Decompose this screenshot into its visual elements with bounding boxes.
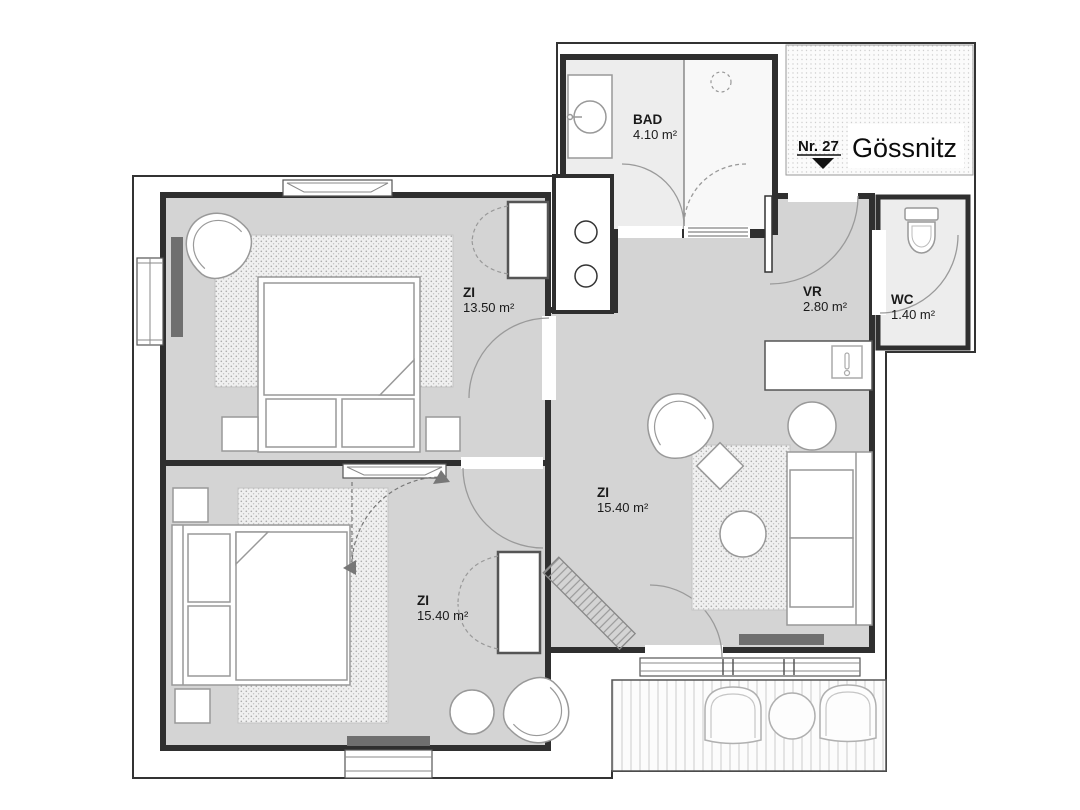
coffee-table-icon	[720, 511, 766, 557]
vanity-sink-icon	[568, 75, 613, 158]
balcony-chair-icon	[820, 685, 876, 742]
room-label-bad: BAD	[633, 112, 662, 127]
window-bedroom-top-north	[283, 180, 392, 196]
room-label-zi-bottom: ZI	[417, 593, 429, 608]
nightstand-icon	[173, 488, 208, 522]
window-bedroom-top-west	[137, 258, 163, 345]
nightstand-icon	[175, 689, 210, 723]
radiator	[739, 634, 824, 645]
shaft-niche	[554, 176, 612, 312]
double-bed-icon	[172, 525, 350, 685]
stool-icon	[450, 690, 494, 734]
shaft-pipe-icon	[575, 221, 597, 243]
room-label-zi-living: ZI	[597, 485, 609, 500]
wc-fixtures	[905, 208, 938, 253]
washbasin-niche	[765, 341, 872, 390]
room-area-zi-living: 15.40 m²	[597, 500, 649, 515]
side-table-icon	[788, 402, 836, 450]
vr-wall-stub	[765, 196, 772, 272]
toilet-icon	[905, 208, 938, 253]
balcony	[612, 680, 886, 771]
floor-plan: BAD 4.10 m² ZI 13.50 m² VR 2.80 m² WC 1.…	[0, 0, 1080, 810]
floor-plan-svg: BAD 4.10 m² ZI 13.50 m² VR 2.80 m² WC 1.…	[0, 0, 1080, 810]
unit-number-label: Nr. 27	[798, 138, 839, 155]
nightstand-icon	[426, 417, 460, 451]
balcony-table-icon	[769, 693, 815, 739]
double-bed-icon	[258, 277, 420, 452]
room-area-zi-top: 13.50 m²	[463, 300, 515, 315]
window-bedroom-bottom-south	[345, 750, 432, 778]
shaft-pipe-icon	[575, 265, 597, 287]
window-living-south	[640, 658, 860, 676]
room-label-zi-top: ZI	[463, 285, 475, 300]
nightstand-icon	[222, 417, 258, 451]
radiator	[171, 237, 183, 337]
balcony-chair-icon	[705, 687, 761, 744]
shower-area	[684, 60, 772, 229]
room-label-wc: WC	[891, 292, 914, 307]
room-label-vr: VR	[803, 284, 822, 299]
room-area-bad: 4.10 m²	[633, 127, 678, 142]
room-area-wc: 1.40 m²	[891, 307, 936, 322]
sofa-icon	[787, 452, 872, 625]
radiator	[347, 736, 430, 746]
room-area-vr: 2.80 m²	[803, 299, 848, 314]
building-name-label: Gössnitz	[852, 133, 957, 163]
room-area-zi-bottom: 15.40 m²	[417, 608, 469, 623]
window-bedroom-bottom-inner	[343, 464, 446, 478]
